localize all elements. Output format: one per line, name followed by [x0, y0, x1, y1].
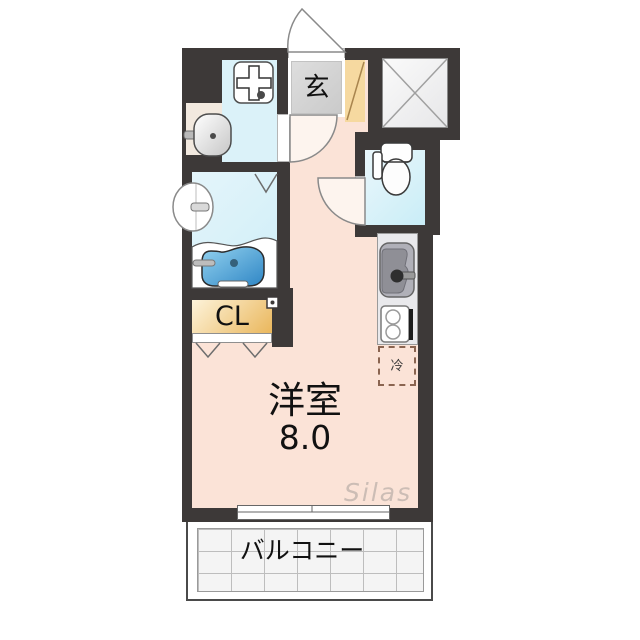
main-room-label-group: 洋室 8.0 [240, 378, 370, 458]
floorplan: 玄 CL 冷 [0, 0, 640, 640]
toilet-icon [373, 143, 412, 195]
elevator-x-icon [383, 59, 447, 127]
entrance-step-diagonal [347, 62, 364, 120]
washing-machine-pan-icon [234, 62, 273, 103]
bath-round-basin-icon [173, 183, 213, 231]
toilet-door-arc [318, 178, 365, 225]
watermark: Silas [344, 478, 424, 507]
washroom-door-arc [290, 115, 337, 162]
balcony-label-wrap: バルコニー [222, 536, 382, 564]
bathtub-icon [192, 238, 277, 288]
stove-icon [381, 306, 413, 342]
kitchen-sink-icon [380, 243, 415, 297]
entrance-door-arc [288, 9, 345, 52]
main-room-size: 8.0 [279, 421, 331, 454]
bathroom-door-v-mark [255, 174, 277, 192]
closet-door-v-marks [196, 343, 267, 357]
main-room-label: 洋室 [268, 382, 342, 419]
balcony-label: バルコニー [240, 538, 365, 563]
pipe-space-icon [267, 297, 278, 308]
washbasin-icon [184, 114, 231, 156]
